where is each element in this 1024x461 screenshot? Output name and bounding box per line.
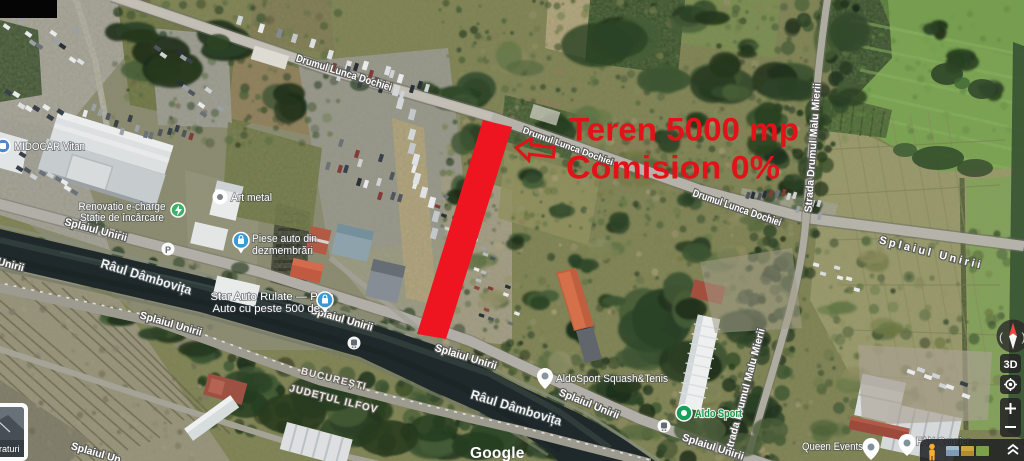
svg-text:(: ( — [999, 330, 1003, 344]
svg-text:P: P — [165, 245, 171, 255]
svg-text:Aldo Sport: Aldo Sport — [695, 408, 742, 420]
svg-text:Teren 5000 mp: Teren 5000 mp — [569, 112, 799, 148]
svg-text:Queen Events: Queen Events — [802, 441, 863, 453]
svg-text:AldoSport Squash&Tenis: AldoSport Squash&Tenis — [556, 373, 668, 385]
svg-text:MIDOCAR Vitan: MIDOCAR Vitan — [14, 141, 85, 153]
svg-text:Star Auto Rulate — Parc: Star Auto Rulate — Parc — [211, 291, 335, 303]
svg-text:3D: 3D — [1003, 359, 1017, 371]
svg-text:Google: Google — [470, 445, 525, 461]
svg-text:Art metal: Art metal — [231, 192, 272, 204]
svg-text:dezmembrări: dezmembrări — [252, 245, 313, 257]
svg-text:Piese auto din: Piese auto din — [252, 233, 317, 245]
svg-text:Auto cu peste 500 de...: Auto cu peste 500 de... — [213, 303, 330, 315]
svg-text:Stație de încărcare: Stație de încărcare — [80, 212, 164, 224]
svg-text:raturi: raturi — [0, 444, 20, 454]
